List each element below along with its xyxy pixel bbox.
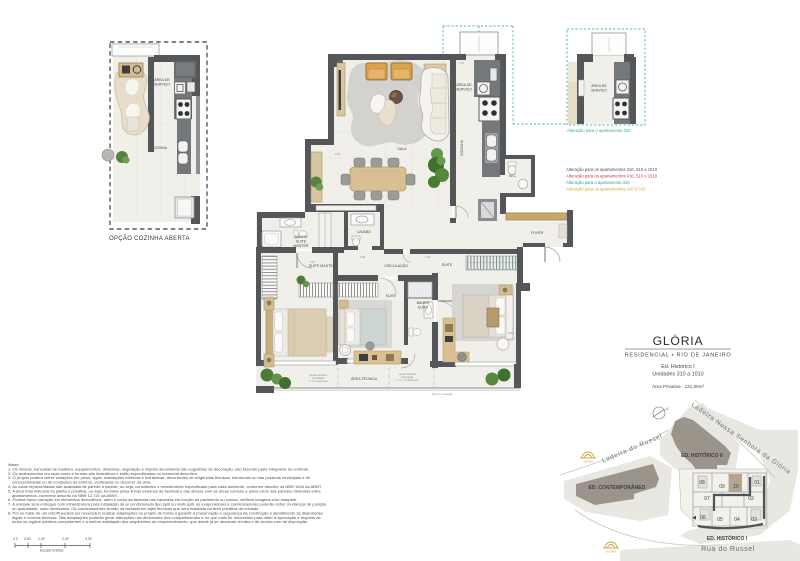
- svg-text:Ed. Histórico I: Ed. Histórico I: [661, 364, 695, 370]
- svg-text:3.00: 3.00: [85, 537, 92, 541]
- svg-text:0.78: 0.78: [338, 59, 344, 63]
- svg-text:COZINHA: COZINHA: [460, 139, 464, 156]
- svg-text:04: 04: [734, 517, 740, 523]
- svg-text:SALA: SALA: [397, 147, 407, 151]
- svg-text:W.C.: W.C.: [509, 174, 517, 178]
- svg-text:ÁREA DE: ÁREA DE: [154, 78, 170, 82]
- svg-text:02: 02: [748, 496, 754, 502]
- svg-text:RESIDENCIAL • RIO DE JANEIRO: RESIDENCIAL • RIO DE JANEIRO: [625, 353, 732, 359]
- svg-text:SUITE: SUITE: [296, 240, 307, 244]
- svg-text:Área Privativa - 131,06m²: Área Privativa - 131,06m²: [652, 383, 705, 389]
- svg-text:1.36: 1.36: [425, 255, 431, 259]
- svg-text:BANHO: BANHO: [417, 301, 430, 305]
- svg-text:todos os órgãos públicos compe: todos os órgãos públicos competentes e a…: [12, 519, 308, 524]
- svg-text:Escala Gráfica: Escala Gráfica: [40, 549, 63, 553]
- svg-text:06: 06: [700, 515, 706, 521]
- svg-text:OPÇÃO COZINHA ABERTA: OPÇÃO COZINHA ABERTA: [109, 235, 190, 242]
- svg-text:03: 03: [751, 517, 757, 523]
- svg-text:SUITE: SUITE: [442, 263, 453, 267]
- svg-text:1.76: 1.76: [459, 61, 465, 65]
- svg-text:ED. HISTÓRICO II: ED. HISTÓRICO II: [681, 451, 723, 459]
- svg-text:ED. CONTEMPORÂNEO: ED. CONTEMPORÂNEO: [589, 484, 646, 491]
- svg-text:7°, 8° e 9° pavimento: 7°, 8° e 9° pavimento: [396, 379, 419, 382]
- svg-text:Rua do Russel: Rua do Russel: [701, 544, 755, 553]
- svg-text:Alteração para o apartamento 3: Alteração para o apartamento 310: [567, 128, 631, 133]
- svg-text:0.0: 0.0: [13, 537, 18, 541]
- svg-text:LAVABO: LAVABO: [357, 230, 371, 234]
- svg-text:10: 10: [733, 484, 739, 490]
- svg-text:07: 07: [704, 496, 710, 502]
- svg-text:09: 09: [719, 484, 725, 490]
- svg-text:Unidades 310 a 1010: Unidades 310 a 1010: [652, 372, 703, 378]
- svg-text:SUITE: SUITE: [386, 294, 397, 298]
- svg-text:0.50: 0.50: [24, 537, 31, 541]
- svg-text:BANHO: BANHO: [295, 235, 308, 239]
- svg-text:ÁREA TÉCNICA: ÁREA TÉCNICA: [351, 376, 378, 381]
- svg-text:COZINHA: COZINHA: [151, 146, 168, 150]
- svg-text:4.95: 4.95: [360, 255, 366, 259]
- svg-text:01: 01: [754, 480, 760, 486]
- svg-text:1.00: 1.00: [38, 537, 45, 541]
- svg-text:Alteração para os apartamentos: Alteração para os apartamentos 410 a 510: [566, 187, 646, 192]
- svg-text:SUITE MASTER: SUITE MASTER: [309, 264, 336, 268]
- svg-text:SERVIÇO: SERVIÇO: [591, 89, 607, 93]
- svg-text:08: 08: [699, 480, 705, 486]
- svg-text:ÁREA DE: ÁREA DE: [591, 84, 607, 88]
- svg-text:7° e 8° pavimento: 7° e 8° pavimento: [309, 380, 329, 383]
- svg-text:2.87: 2.87: [310, 260, 316, 264]
- svg-text:SERVIÇO: SERVIÇO: [456, 88, 472, 92]
- svg-text:2.00: 2.00: [62, 537, 69, 541]
- svg-text:Alteração para o apartamento 3: Alteração para o apartamento 310: [566, 180, 630, 185]
- svg-text:05: 05: [717, 517, 723, 523]
- svg-text:FOYER: FOYER: [531, 231, 544, 235]
- svg-text:◀: ◀: [692, 515, 696, 521]
- svg-text:Alteração para os apartamentos: Alteração para os apartamentos 410, 510 …: [566, 174, 658, 179]
- svg-text:ED. HISTÓRICO I: ED. HISTÓRICO I: [707, 534, 748, 542]
- svg-text:SUITE: SUITE: [418, 306, 429, 310]
- svg-text:Tecto em venezana: Tecto em venezana: [432, 393, 453, 396]
- svg-text:Alteração para os apartamentos: Alteração para os apartamentos 310, 610 …: [566, 167, 658, 172]
- svg-text:SERVIÇO: SERVIÇO: [154, 83, 170, 87]
- svg-text:GLÓRIA: GLÓRIA: [653, 333, 704, 348]
- svg-text:4.19: 4.19: [335, 152, 341, 156]
- svg-text:ÁREA DE: ÁREA DE: [456, 83, 472, 87]
- svg-text:MASTER: MASTER: [294, 244, 309, 248]
- svg-text:4.80: 4.80: [508, 331, 514, 335]
- svg-text:CIRCULAÇÃO: CIRCULAÇÃO: [384, 263, 408, 268]
